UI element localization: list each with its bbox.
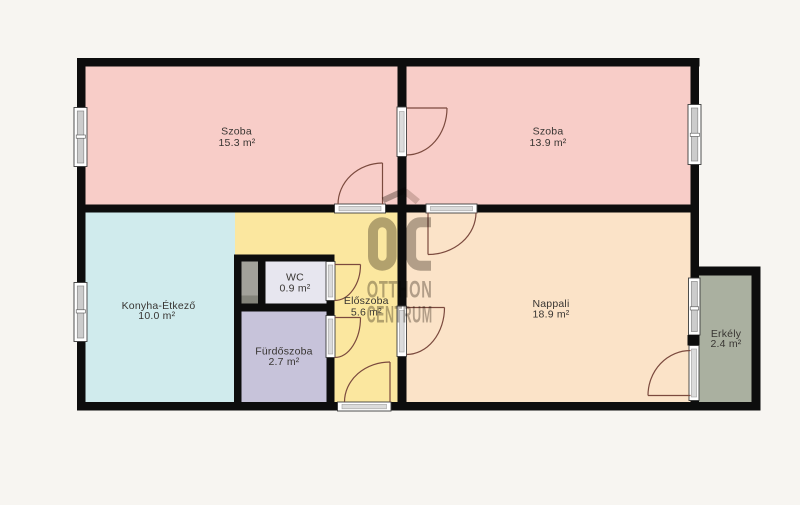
svg-text:10.0 m²: 10.0 m² — [138, 310, 175, 322]
svg-text:2.4 m²: 2.4 m² — [711, 338, 742, 350]
svg-text:2.7 m²: 2.7 m² — [269, 356, 300, 368]
svg-text:OTTHON: OTTHON — [367, 277, 433, 304]
svg-text:Szoba: Szoba — [533, 126, 564, 138]
svg-text:15.3 m²: 15.3 m² — [219, 137, 256, 149]
svg-text:0.9 m²: 0.9 m² — [280, 283, 311, 295]
svg-text:CENTRUM: CENTRUM — [367, 301, 433, 329]
svg-text:Szoba: Szoba — [221, 126, 252, 138]
svg-text:13.9 m²: 13.9 m² — [530, 137, 567, 149]
svg-text:18.9 m²: 18.9 m² — [533, 308, 570, 320]
